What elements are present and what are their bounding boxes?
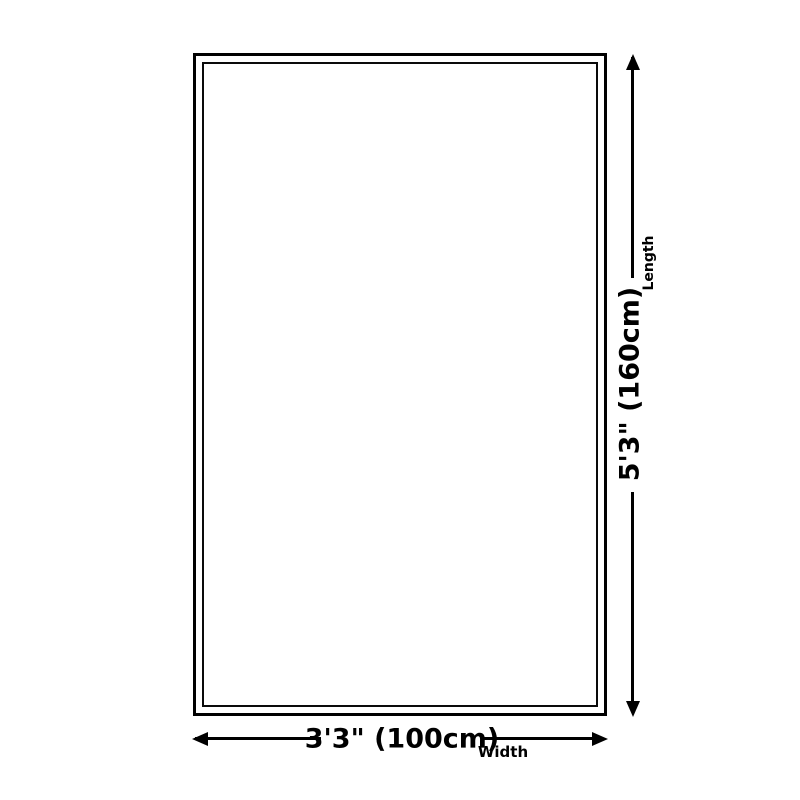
width-arrow-line-left bbox=[195, 737, 321, 740]
width-arrow-line-right bbox=[483, 737, 596, 740]
arrow-left-icon bbox=[192, 732, 208, 746]
length-value: 5'3" (160cm) bbox=[615, 287, 646, 481]
length-label: Length bbox=[641, 235, 657, 290]
width-label: Width bbox=[478, 743, 528, 761]
width-value: 3'3" (100cm) bbox=[305, 724, 499, 755]
rug-outline-inner bbox=[202, 62, 598, 707]
rug-size-diagram: Length 5'3" (160cm) 3'3" (100cm) Width bbox=[0, 0, 800, 800]
length-arrow-line-bottom bbox=[631, 492, 634, 704]
arrow-up-icon bbox=[626, 54, 640, 70]
length-arrow-line-top bbox=[631, 57, 634, 278]
arrow-down-icon bbox=[626, 701, 640, 717]
arrow-right-icon bbox=[592, 732, 608, 746]
